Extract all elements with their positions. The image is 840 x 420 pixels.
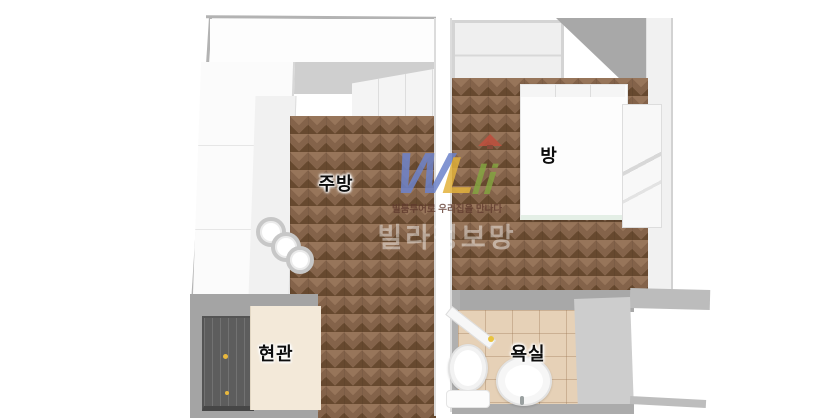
appliance-round-door-3 [286, 246, 314, 274]
bathroom-right-wall [574, 297, 634, 411]
toilet-bowl [448, 344, 488, 392]
kitchen-label: 주방 [298, 170, 374, 196]
bathroom-label: 욕실 [492, 340, 564, 366]
floorplan-canvas: 주방 현관 방 욕실 W L li 빌룸투어로 우리집을 만나다 빌라정보망 [0, 0, 840, 420]
bathroom-outer-corner-wall [630, 396, 706, 408]
watermark-brand: 빌라정보망 [367, 216, 527, 255]
front-door-lower-knob [225, 391, 229, 395]
bedroom-label: 방 [528, 142, 570, 168]
watermark-logo: W L li [364, 140, 530, 198]
bedroom-window [452, 20, 564, 84]
bathroom-wall-extension [630, 288, 710, 310]
toilet-tank [446, 390, 490, 408]
watermark: W L li 빌룸투어로 우리집을 만나다 빌라정보망 [367, 140, 527, 255]
bed-pillows [521, 85, 625, 97]
wardrobe [622, 104, 662, 228]
watermark-tagline: 빌룸투어로 우리집을 만나다 [367, 201, 527, 215]
logo-house-roof-icon [478, 134, 502, 146]
sink-faucet [520, 396, 524, 405]
kitchen-top-wall [210, 19, 436, 63]
logo-letter-li: li [471, 162, 498, 198]
entrance-label: 현관 [238, 340, 314, 366]
front-door-knob [223, 354, 228, 359]
